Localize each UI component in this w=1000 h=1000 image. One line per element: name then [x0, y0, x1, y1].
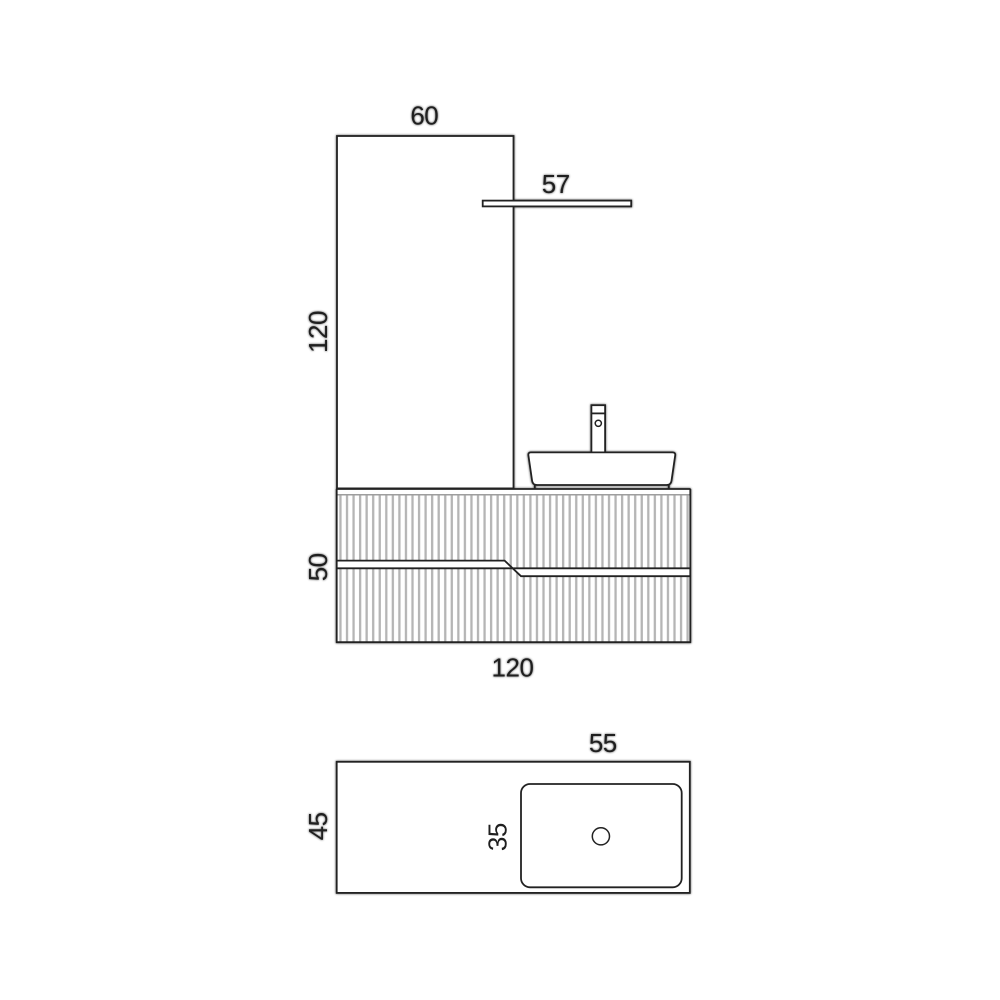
- svg-text:50: 50: [303, 553, 333, 581]
- svg-text:120: 120: [492, 652, 534, 682]
- svg-text:55: 55: [589, 728, 617, 758]
- svg-text:45: 45: [303, 812, 333, 840]
- svg-text:120: 120: [303, 311, 333, 353]
- svg-text:35: 35: [483, 823, 513, 851]
- svg-text:57: 57: [542, 169, 570, 199]
- svg-text:60: 60: [410, 100, 438, 130]
